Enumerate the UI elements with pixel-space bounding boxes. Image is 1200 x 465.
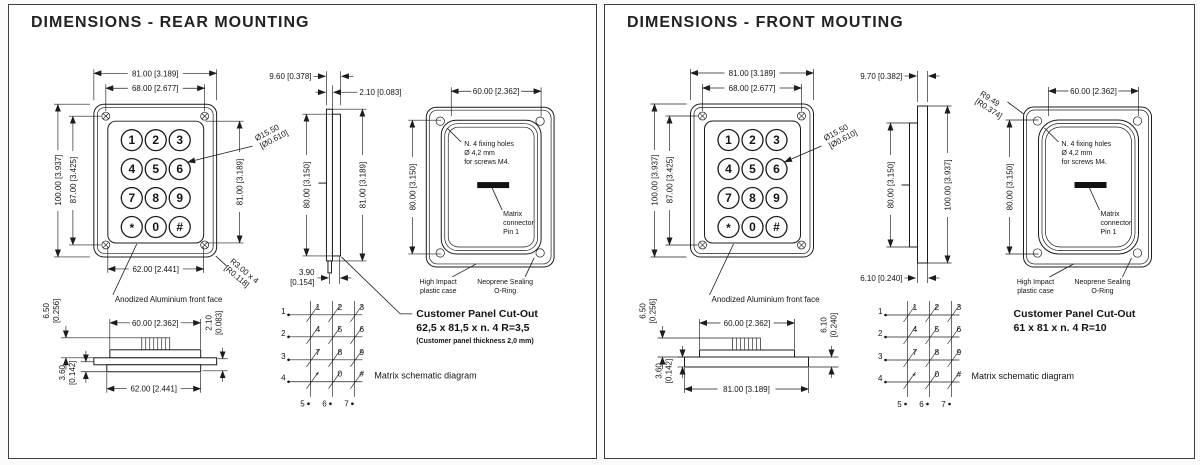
key-hash: # xyxy=(773,220,780,234)
matrix-cell: 1 xyxy=(913,302,918,312)
side-front-plate xyxy=(326,109,332,261)
svg-text:62.00 [2.441]: 62.00 [2.441] xyxy=(132,265,179,274)
key-3: 3 xyxy=(773,133,780,147)
svg-text:[0.154]: [0.154] xyxy=(290,278,314,287)
matrix-row-label: 2 xyxy=(281,329,286,338)
key-3: 3 xyxy=(176,133,183,147)
svg-text:N. 4 fixing holes: N. 4 fixing holes xyxy=(464,141,514,148)
key-5: 5 xyxy=(749,162,756,176)
matrix-cell: 9 xyxy=(359,347,364,357)
matrix-caption: Matrix schematic diagram xyxy=(374,371,476,381)
svg-text:[0.256]: [0.256] xyxy=(649,299,658,323)
front-view: 1 2 3 4 5 6 7 8 9 * 0 # 81.00 [3.189] xyxy=(651,69,859,304)
matrix-col-label: 7 xyxy=(344,400,349,409)
matrix-row-label: 1 xyxy=(878,307,883,316)
cutout-leader xyxy=(341,257,412,314)
key-9: 9 xyxy=(773,191,780,205)
svg-text:6.50: 6.50 xyxy=(42,303,51,319)
rear-view: 60.00 [2.362] 80.00 [3.150] N. 4 fixing … xyxy=(408,87,554,295)
svg-text:Anodized Aluminium front face: Anodized Aluminium front face xyxy=(115,295,223,304)
front-view: 1 2 3 4 5 6 7 8 9 * 0 # 81.00 [3.189] xyxy=(54,69,290,304)
key-9: 9 xyxy=(176,191,183,205)
dim-bottom-body-width: 60.00 [2.362] xyxy=(110,319,201,349)
svg-text:60.00 [2.362]: 60.00 [2.362] xyxy=(132,319,179,328)
svg-text:100.00 [3.937]: 100.00 [3.937] xyxy=(651,154,660,205)
matrix-cell: 6 xyxy=(359,324,364,334)
svg-text:Pin 1: Pin 1 xyxy=(503,229,519,236)
mounting-flange xyxy=(107,365,201,372)
matrix-cell: # xyxy=(957,369,962,379)
svg-text:100.00 [3.937]: 100.00 [3.937] xyxy=(944,159,953,210)
svg-text:60.00 [2.362]: 60.00 [2.362] xyxy=(473,87,520,96)
side-body xyxy=(910,123,918,247)
svg-text:3.60: 3.60 xyxy=(655,363,664,379)
key-star: * xyxy=(726,221,731,235)
key-2: 2 xyxy=(749,133,756,147)
matrix-cell: * xyxy=(913,371,917,381)
svg-text:87.00 [3.425]: 87.00 [3.425] xyxy=(666,157,675,204)
dim-side-plate-height: 100.00 [3.937] xyxy=(928,106,953,263)
svg-text:Neoprene Sealing: Neoprene Sealing xyxy=(477,279,533,286)
svg-text:plastic case: plastic case xyxy=(1017,288,1054,295)
key-7: 7 xyxy=(725,191,732,205)
key-1: 1 xyxy=(725,133,732,147)
key-0: 0 xyxy=(749,220,756,234)
matrix-col-label: 5 xyxy=(300,400,305,409)
side-view: 9.60 [0.378] 2.10 [0.083] 80.00 [3.150] … xyxy=(269,71,412,314)
key-4: 4 xyxy=(725,162,732,176)
svg-text:9.60 [0.378]: 9.60 [0.378] xyxy=(269,72,311,81)
dim-side-bottom-offset: 6.10 [0.240] xyxy=(860,263,939,283)
bottom-view: 6.50 [0.256] 60.00 [2.362] 2.10 [0.083] xyxy=(42,299,228,394)
matrix-cell: # xyxy=(359,369,364,379)
svg-text:81.00 [3.189]: 81.00 [3.189] xyxy=(358,162,367,209)
svg-text:plastic case: plastic case xyxy=(420,288,457,295)
dim-side-bottom-offset: 3.90 [0.154] xyxy=(290,256,351,287)
svg-text:80.00 [3.150]: 80.00 [3.150] xyxy=(887,162,896,209)
svg-text:Matrix: Matrix xyxy=(1101,211,1121,218)
matrix-cell: 5 xyxy=(337,324,342,334)
svg-text:Ø 4,2 mm: Ø 4,2 mm xyxy=(464,150,495,157)
svg-text:62.00 [2.441]: 62.00 [2.441] xyxy=(130,385,177,394)
dim-side-flange-thickness: 2.10 [0.083] xyxy=(315,85,401,109)
svg-text:Neoprene Sealing: Neoprene Sealing xyxy=(1074,279,1130,286)
matrix-row-label: 4 xyxy=(281,374,286,383)
key-8: 8 xyxy=(749,191,756,205)
matrix-connector xyxy=(1075,182,1107,188)
svg-text:6.50: 6.50 xyxy=(639,303,648,319)
matrix-cell: 8 xyxy=(935,347,940,357)
technical-drawing: 1 2 3 4 5 6 7 8 9 * 0 # 81.00 [3.189] xyxy=(9,5,596,458)
matrix-row-label: 3 xyxy=(281,352,286,361)
svg-text:Ø 4,2 mm: Ø 4,2 mm xyxy=(1062,150,1093,157)
key-4: 4 xyxy=(128,162,135,176)
matrix-row-label: 4 xyxy=(878,374,883,383)
matrix-row-label: 3 xyxy=(878,352,883,361)
svg-text:3.90: 3.90 xyxy=(299,268,315,277)
panel-front-mounting: DIMENSIONS - FRONT MOUTING 1 2 3 4 5 6 xyxy=(604,4,1195,459)
svg-text:connector: connector xyxy=(503,220,534,227)
svg-text:Anodized Aluminium front face: Anodized Aluminium front face xyxy=(712,295,821,304)
svg-text:87.00 [3.425]: 87.00 [3.425] xyxy=(69,157,78,204)
dim-side-depth: 9.70 [0.382] xyxy=(860,71,939,102)
svg-text:80.00 [3.150]: 80.00 [3.150] xyxy=(408,164,417,211)
panel-rear-mounting: DIMENSIONS - REAR MOUNTING 1 2 3 4 5 6 xyxy=(8,4,597,459)
dim-side-depth: 9.60 [0.378] xyxy=(269,71,353,105)
case-body xyxy=(110,350,201,358)
matrix-col-label: 6 xyxy=(322,400,327,409)
key-star: * xyxy=(129,221,134,235)
key-6: 6 xyxy=(773,162,780,176)
svg-text:81.00 [3.189]: 81.00 [3.189] xyxy=(132,69,179,78)
callout-plastic-case: High Impact plastic case xyxy=(420,264,477,295)
key-8: 8 xyxy=(152,191,159,205)
svg-text:2.10 [0.083]: 2.10 [0.083] xyxy=(359,88,401,97)
callout-plastic-case: High Impact plastic case xyxy=(1017,264,1074,295)
matrix-cell: 4 xyxy=(913,324,918,334)
svg-text:6.10: 6.10 xyxy=(820,317,829,333)
matrix-cell: 3 xyxy=(957,302,962,312)
matrix-col-label: 6 xyxy=(919,400,924,409)
matrix-cell: 5 xyxy=(935,324,940,334)
side-front-plate xyxy=(918,106,928,263)
matrix-cell: 7 xyxy=(315,347,320,357)
matrix-cell: 4 xyxy=(315,324,320,334)
svg-text:9.70 [0.382]: 9.70 [0.382] xyxy=(860,72,902,81)
front-plate-edge xyxy=(685,357,809,367)
matrix-cell: 0 xyxy=(337,369,342,379)
cutout-title: Customer Panel Cut-Out xyxy=(1014,308,1136,320)
key-hash: # xyxy=(176,220,183,234)
cutout-thickness-note: (Customer panel thickness 2,0 mm) xyxy=(416,338,533,345)
svg-text:[0.142]: [0.142] xyxy=(665,359,674,383)
matrix-cell: 1 xyxy=(315,302,320,312)
key-7: 7 xyxy=(128,191,135,205)
svg-text:Matrix: Matrix xyxy=(503,211,522,218)
technical-drawing: 1 2 3 4 5 6 7 8 9 * 0 # 81.00 [3.189] xyxy=(605,5,1194,458)
dim-bottom-plate-thickness: 6.10 [0.240] xyxy=(809,313,839,378)
bottom-view: 6.50 [0.256] 60.00 [2.362] 6.10 [0.240] xyxy=(639,299,839,394)
matrix-cell: 2 xyxy=(337,302,342,312)
svg-text:High Impact: High Impact xyxy=(1017,279,1054,286)
matrix-caption: Matrix schematic diagram xyxy=(972,371,1075,381)
case-body xyxy=(700,350,795,357)
matrix-cell: 7 xyxy=(913,347,918,357)
matrix-row-label: 2 xyxy=(878,329,883,338)
matrix-cell: 8 xyxy=(337,347,342,357)
svg-text:O-Ring: O-Ring xyxy=(494,288,516,295)
dim-bottom-lower-height: 3.60 [0.142] xyxy=(58,351,107,385)
dim-bottom-flange-thickness: 2.10 [0.083] xyxy=(203,311,228,382)
svg-text:[0.142]: [0.142] xyxy=(68,361,77,385)
svg-text:81.00 [3.189]: 81.00 [3.189] xyxy=(723,385,770,394)
cutout-note: Customer Panel Cut-Out 61 x 81 x n. 4 R=… xyxy=(1014,308,1136,334)
svg-text:[0.083]: [0.083] xyxy=(215,311,224,335)
matrix-col-label: 7 xyxy=(941,400,946,409)
matrix-connector xyxy=(477,182,509,188)
svg-text:6.10 [0.240]: 6.10 [0.240] xyxy=(860,274,902,283)
matrix-cell: 6 xyxy=(957,324,962,334)
matrix-cell: 0 xyxy=(935,369,940,379)
svg-text:81.00 [3.189]: 81.00 [3.189] xyxy=(236,159,245,206)
dim-bottom-body-width: 60.00 [2.362] xyxy=(700,319,795,349)
svg-text:[0.240]: [0.240] xyxy=(830,313,839,337)
svg-text:for screws M4.: for screws M4. xyxy=(1062,159,1108,166)
svg-text:O-Ring: O-Ring xyxy=(1091,288,1113,295)
key-2: 2 xyxy=(152,133,159,147)
svg-text:Pin 1: Pin 1 xyxy=(1101,229,1117,236)
svg-text:N. 4 fixing holes: N. 4 fixing holes xyxy=(1062,141,1112,148)
side-body xyxy=(332,114,340,256)
front-plate-edge xyxy=(94,358,217,365)
matrix-row-label: 1 xyxy=(281,307,286,316)
key-1: 1 xyxy=(128,133,135,147)
svg-text:100.00 [3.937]: 100.00 [3.937] xyxy=(54,155,63,206)
matrix-cell: * xyxy=(315,371,319,381)
svg-text:60.00 [2.362]: 60.00 [2.362] xyxy=(724,319,771,328)
key-0: 0 xyxy=(152,220,159,234)
cutout-note: Customer Panel Cut-Out 62,5 x 81,5 x n. … xyxy=(416,309,538,345)
svg-text:High Impact: High Impact xyxy=(420,279,457,286)
key-5: 5 xyxy=(152,162,159,176)
callout-corner-radius: R3.00 x 4 [R0.118] xyxy=(216,256,261,293)
svg-text:60.00 [2.362]: 60.00 [2.362] xyxy=(1070,87,1117,96)
rear-view: 60.00 [2.362] 80.00 [3.150] N. 4 fixing … xyxy=(1006,87,1152,295)
svg-text:for screws M4.: for screws M4. xyxy=(464,159,509,166)
svg-text:68.00 [2.677]: 68.00 [2.677] xyxy=(729,84,776,93)
svg-text:3.60: 3.60 xyxy=(58,364,67,380)
svg-text:connector: connector xyxy=(1101,220,1132,227)
dim-bottom-flange-width: 62.00 [2.441] xyxy=(107,373,201,394)
svg-text:[0.256]: [0.256] xyxy=(52,299,61,323)
side-plate-tail xyxy=(328,261,331,273)
svg-text:81.00 [3.189]: 81.00 [3.189] xyxy=(729,69,776,78)
dim-bottom-lower-height: 3.60 [0.142] xyxy=(655,346,685,383)
cutout-size: 61 x 81 x n. 4 R=10 xyxy=(1014,322,1107,334)
drawing-sheet: DIMENSIONS - REAR MOUNTING 1 2 3 4 5 6 xyxy=(0,0,1200,465)
svg-text:68.00 [2.677]: 68.00 [2.677] xyxy=(132,84,179,93)
cutout-title: Customer Panel Cut-Out xyxy=(416,309,538,320)
svg-text:80.00 [3.150]: 80.00 [3.150] xyxy=(302,162,311,209)
svg-text:80.00 [3.150]: 80.00 [3.150] xyxy=(1006,164,1015,211)
matrix-cell: 3 xyxy=(359,302,364,312)
svg-text:2.10: 2.10 xyxy=(205,315,214,331)
dim-bottom-plate-width: 81.00 [3.189] xyxy=(685,368,809,394)
matrix-cell: 9 xyxy=(957,347,962,357)
matrix-col-label: 5 xyxy=(897,400,902,409)
key-6: 6 xyxy=(176,162,183,176)
matrix-cell: 2 xyxy=(935,302,940,312)
cutout-size: 62,5 x 81,5 x n. 4 R=3,5 xyxy=(416,323,529,334)
